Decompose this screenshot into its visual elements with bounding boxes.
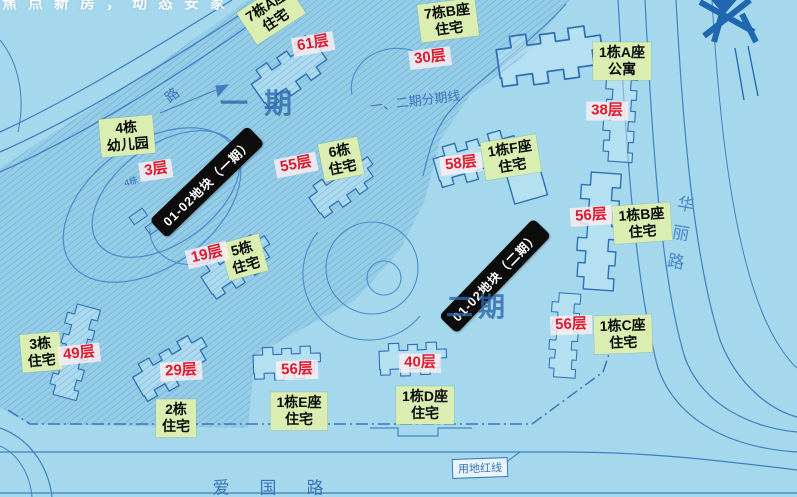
building-label-1e: 1栋E座 住宅 [270, 392, 327, 430]
building-label-1b: 1栋B座 住宅 [612, 202, 672, 244]
building-label-4: 4栋 幼儿园 [98, 115, 155, 157]
floor-tag-1e: 56层 [276, 360, 318, 380]
building-name-line2: 住宅 [402, 405, 448, 422]
building-name-line2: 住宅 [619, 221, 666, 241]
building-name-line2: 住宅 [600, 333, 646, 351]
building-label-3: 3栋 住宅 [19, 332, 62, 373]
building-name-line1: 2栋 [162, 401, 190, 418]
red-line-label: 用地红线 [452, 457, 509, 479]
building-name-line1: 1栋E座 [276, 394, 321, 411]
building-name-line1: 1栋A座 [599, 44, 645, 61]
building-label-1a: 1栋A座 公寓 [593, 42, 651, 80]
building-label-1c: 1栋C座 住宅 [593, 314, 652, 354]
building-name-line2: 幼儿园 [106, 134, 149, 154]
interchange-sketch [700, 0, 758, 100]
building-name-line1: 1栋D座 [402, 388, 448, 405]
site-plan-screenshot: 焦点新房，动态安家 01-02地块（一期） 01-02地块（二期） 一期 二期 … [0, 0, 797, 497]
floor-tag-1b: 56层 [570, 205, 613, 227]
building-label-1d: 1栋D座 住宅 [396, 386, 454, 424]
watermark-text: 焦点新房，动态安家 [2, 0, 236, 13]
road-bottom [0, 428, 797, 497]
floor-tag-1c: 56层 [550, 315, 592, 335]
road-name-bottom: 爱国路 [213, 474, 354, 497]
phase1-text: 一期 [220, 82, 308, 122]
building-name-line2: 住宅 [27, 351, 56, 370]
building-name-line2: 住宅 [276, 411, 321, 428]
phase2-text: 二期 [446, 286, 510, 325]
building-label-6: 6栋 住宅 [318, 137, 364, 182]
building-label-2: 2栋 住宅 [156, 399, 196, 437]
building-name-line1: 1栋B座 [618, 205, 665, 225]
floor-tag-1d: 40层 [399, 354, 441, 373]
floor-tag-2: 29层 [160, 361, 203, 382]
building-label-7b: 7栋B座 住宅 [417, 0, 479, 42]
floor-tag-1a: 38层 [586, 102, 628, 121]
building-name-line2: 住宅 [162, 418, 190, 435]
building-name-line2: 公寓 [599, 61, 645, 78]
building-name-line1: 1栋C座 [599, 316, 645, 334]
